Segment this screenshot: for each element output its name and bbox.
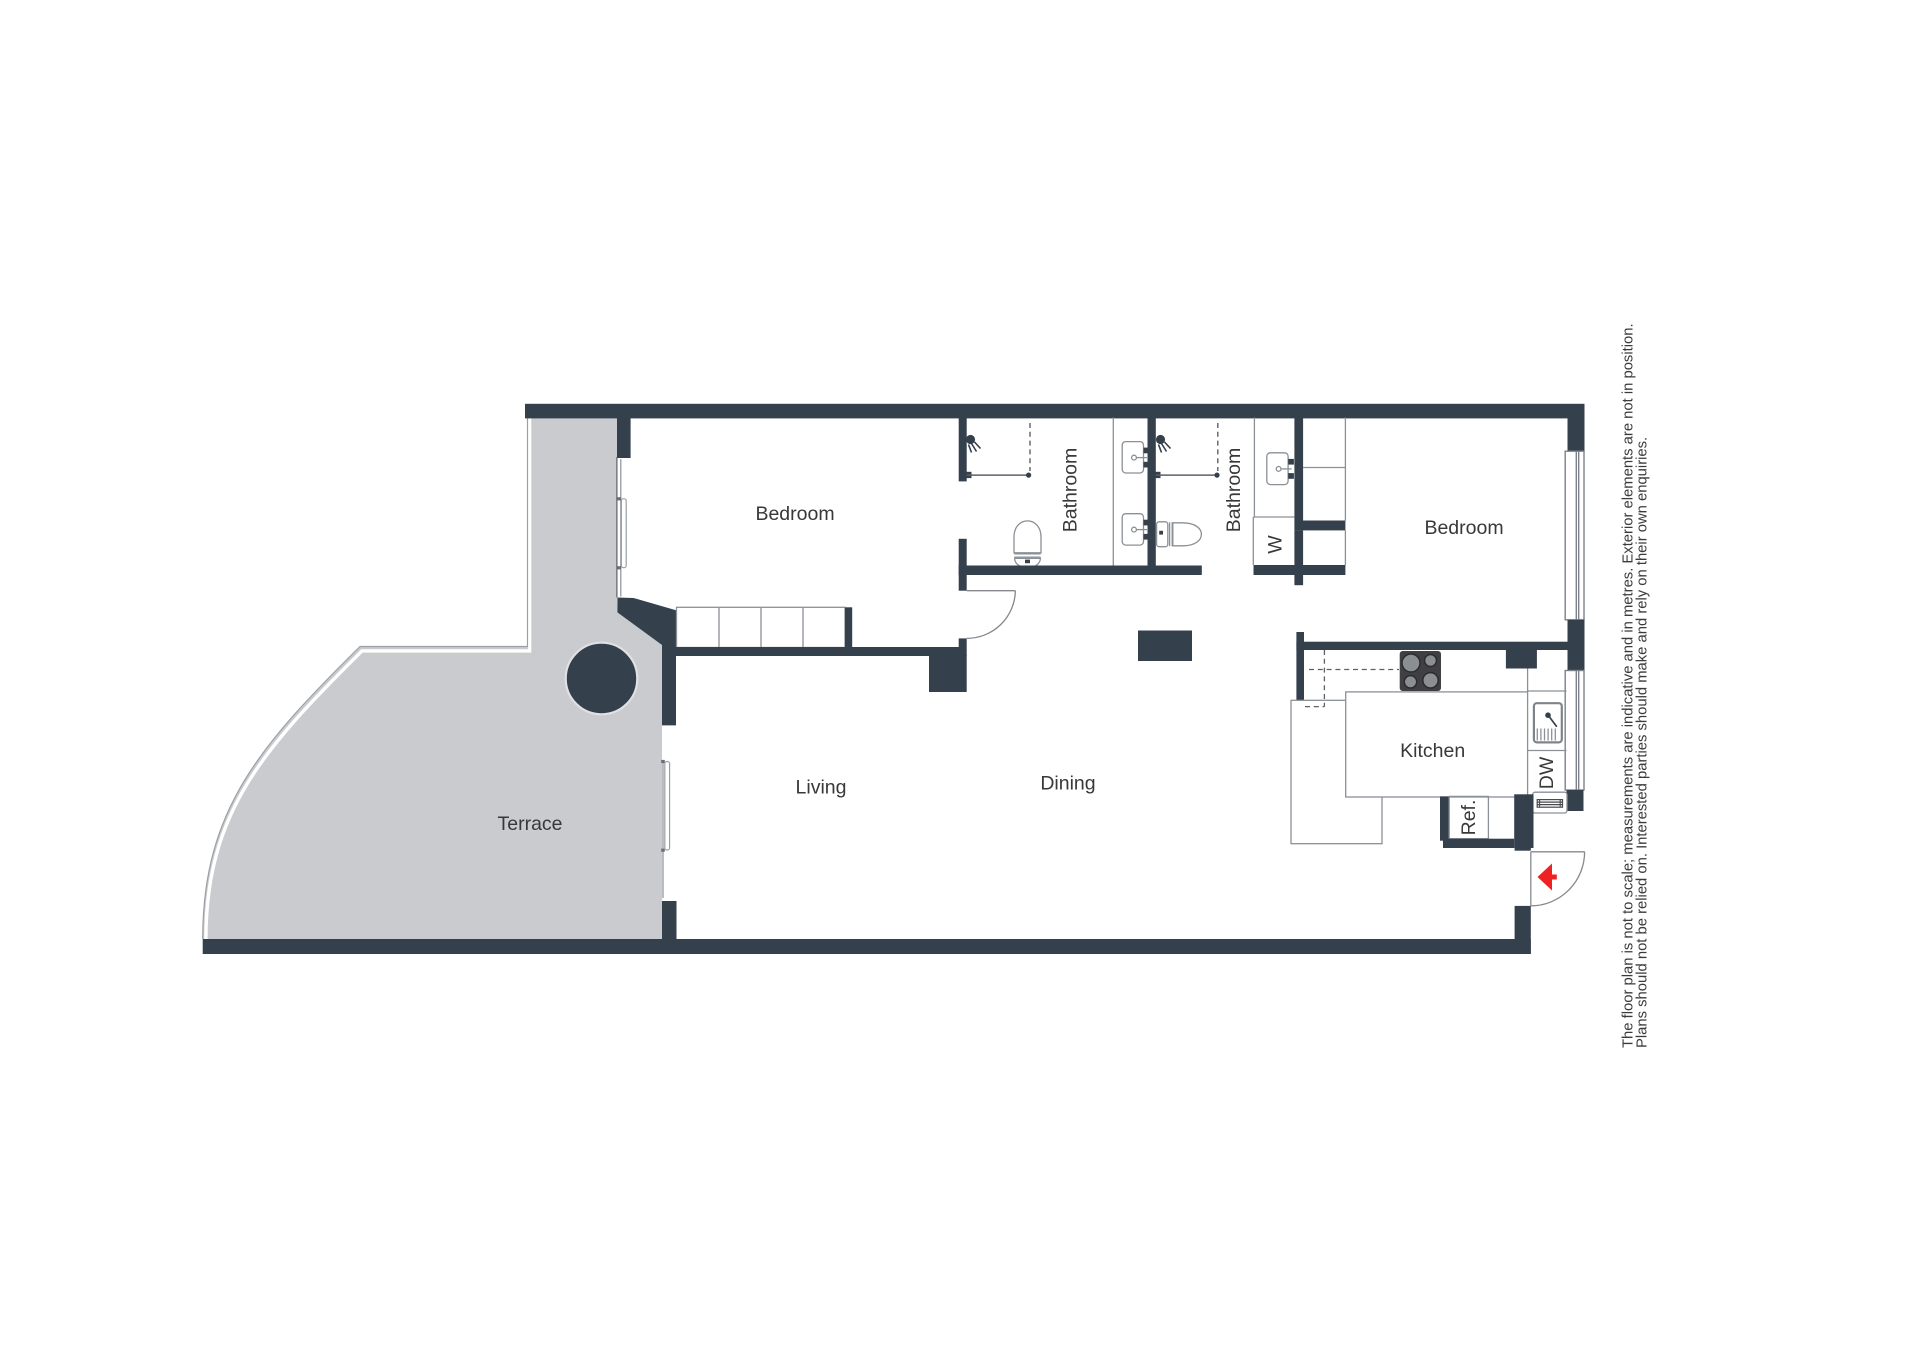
svg-text:Terrace: Terrace [497, 813, 562, 835]
svg-text:Living: Living [796, 777, 847, 799]
svg-text:Bathroom: Bathroom [1223, 448, 1245, 533]
svg-text:Bedroom: Bedroom [1424, 517, 1503, 539]
svg-text:Dining: Dining [1040, 773, 1095, 795]
svg-text:Ref.: Ref. [1458, 800, 1480, 836]
svg-text:DW: DW [1536, 756, 1558, 789]
svg-text:Kitchen: Kitchen [1400, 740, 1465, 762]
svg-text:Bedroom: Bedroom [755, 503, 834, 525]
svg-text:W: W [1265, 535, 1287, 554]
svg-text:Plans should not be relied on.: Plans should not be relied on. Intereste… [1635, 437, 1651, 1048]
svg-text:Bathroom: Bathroom [1060, 448, 1082, 533]
